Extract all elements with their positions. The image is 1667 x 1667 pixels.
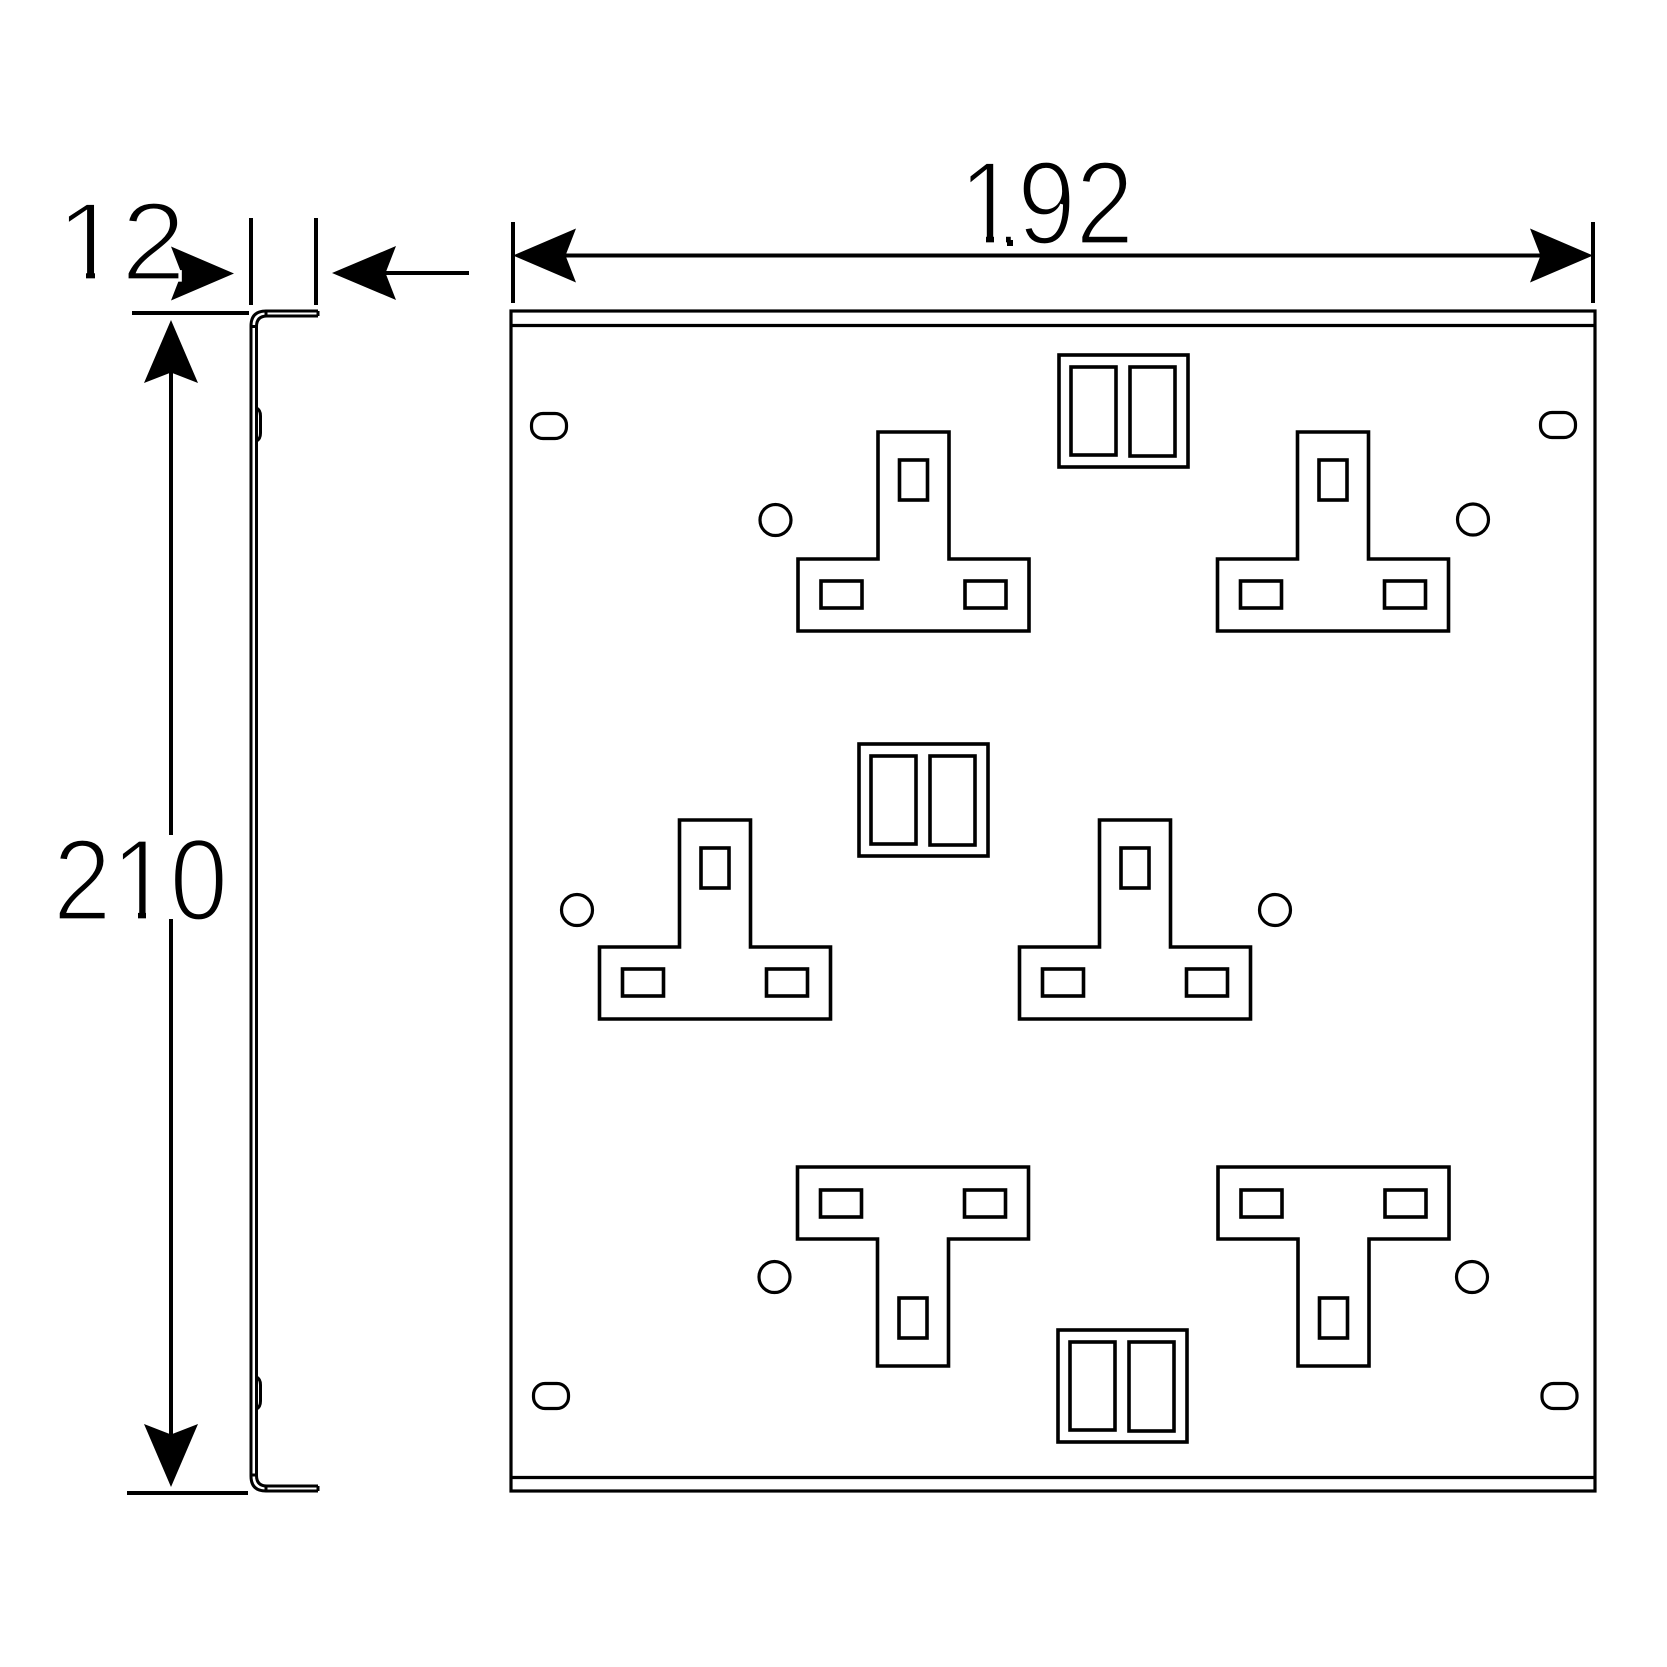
svg-text:12: 12: [56, 180, 186, 304]
svg-text:210: 210: [53, 815, 228, 945]
svg-text:192: 192: [959, 137, 1134, 270]
